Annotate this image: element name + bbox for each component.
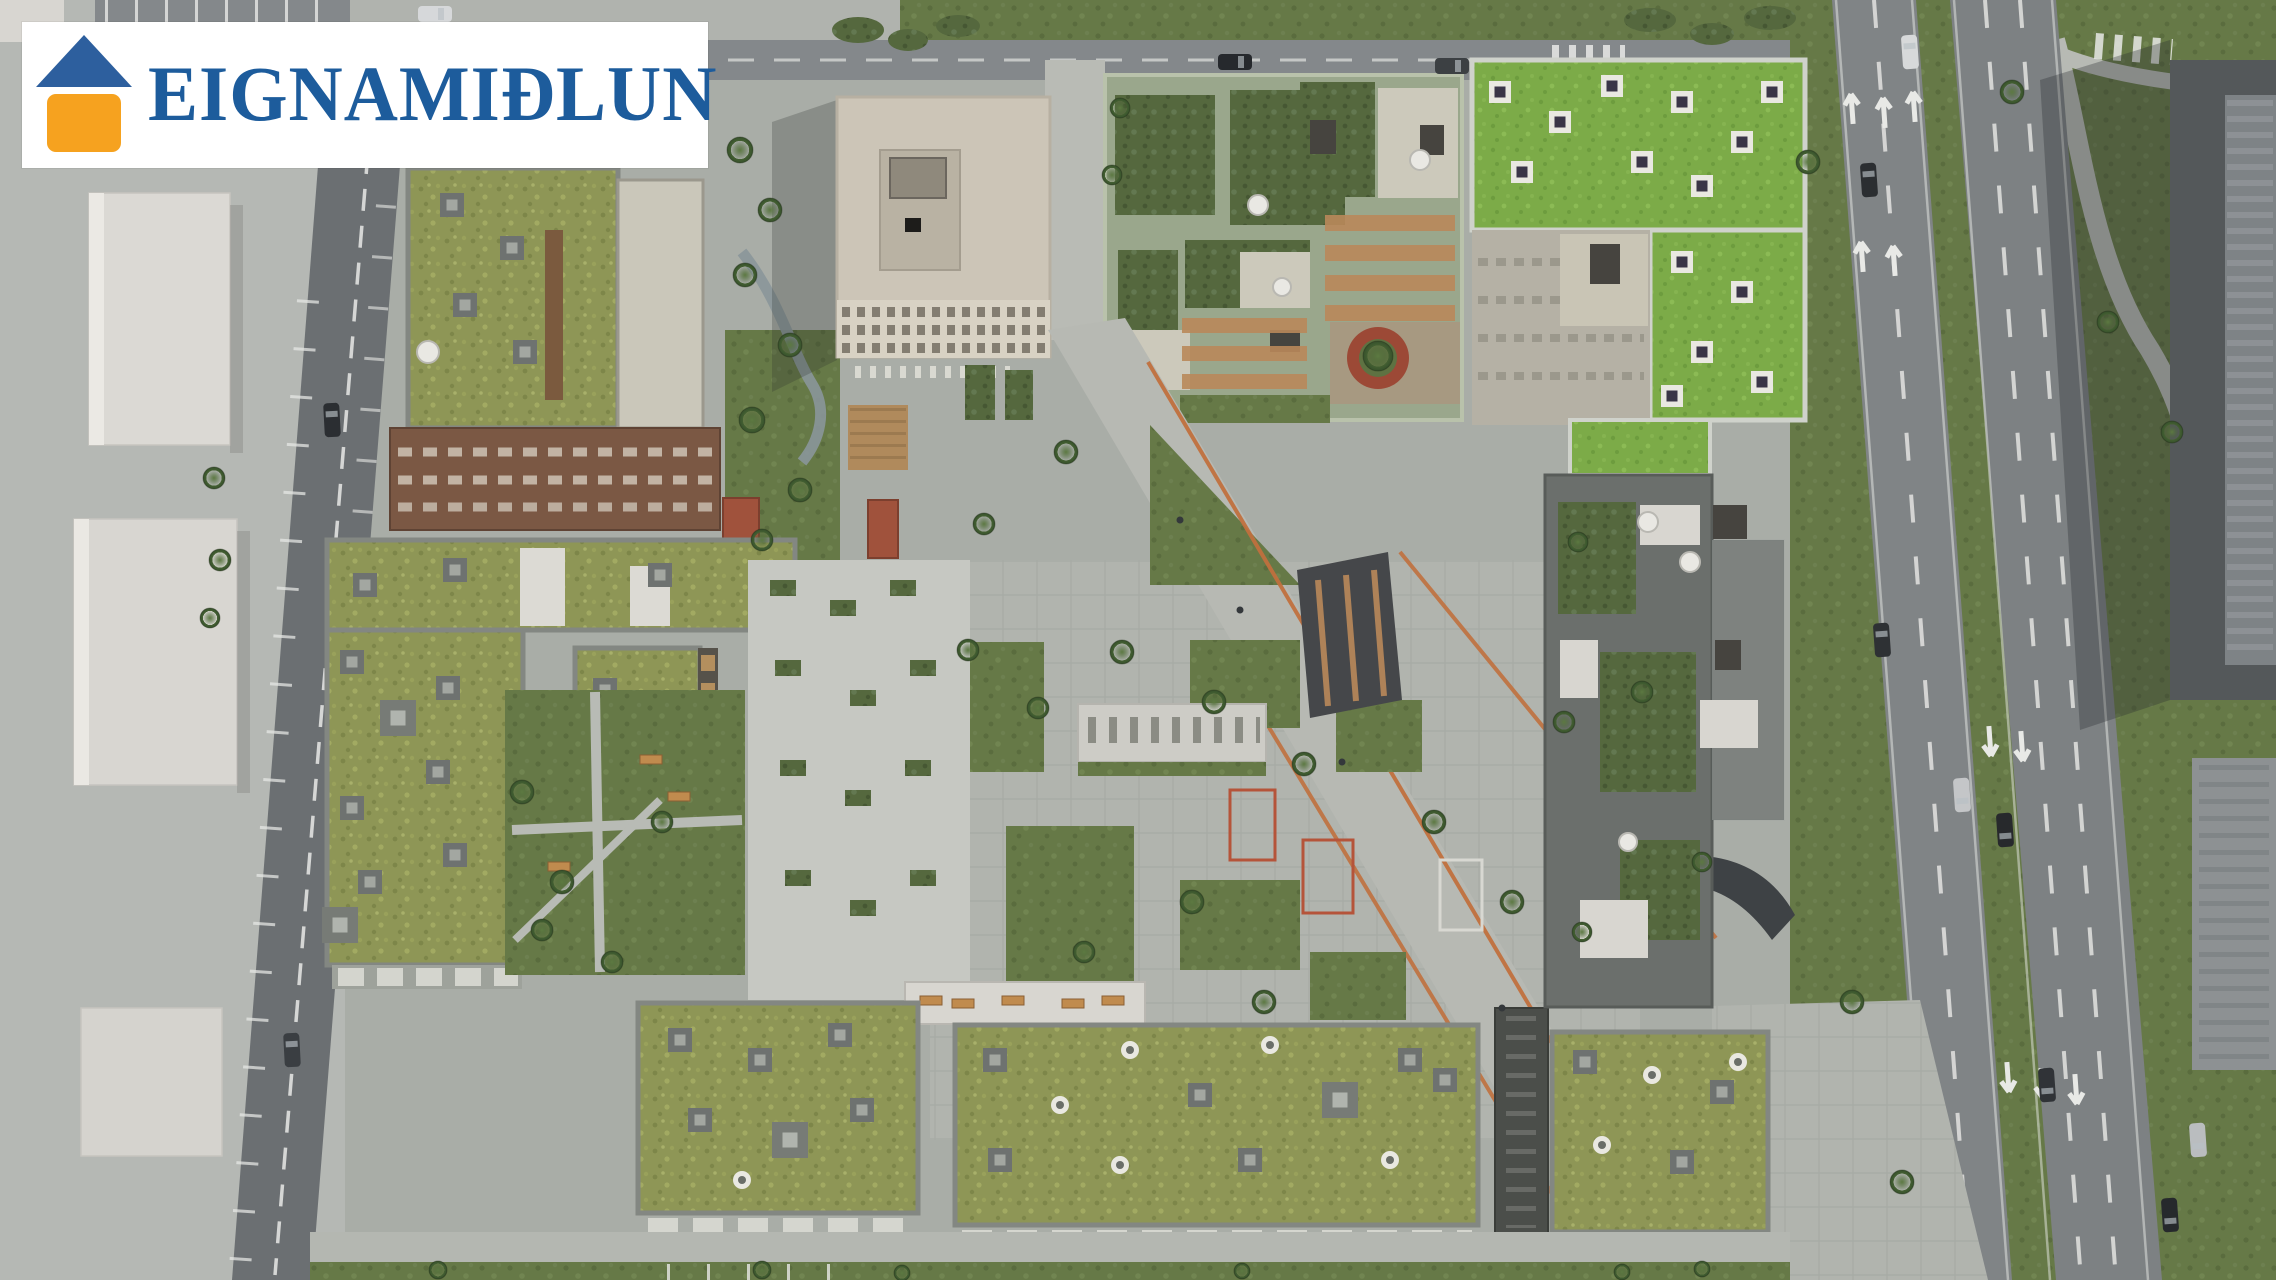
pedestrian <box>1177 517 1184 524</box>
car <box>2038 1067 2056 1102</box>
car <box>2189 1122 2207 1157</box>
tree <box>1890 1170 1914 1194</box>
tree <box>2161 421 2183 443</box>
car <box>1860 162 1878 197</box>
rooftop-hut <box>1713 505 1747 539</box>
car <box>1901 34 1919 69</box>
tree <box>1234 1263 1250 1279</box>
nw-block-sedum-roof <box>408 168 618 428</box>
skylight <box>1601 75 1623 97</box>
house-body-shape <box>47 94 121 152</box>
podium-planter <box>770 580 796 596</box>
skylight <box>733 1171 751 1189</box>
house-roof-shape <box>36 35 132 87</box>
tree <box>1692 852 1712 872</box>
tree <box>429 1261 447 1279</box>
pedestrian <box>1237 607 1244 614</box>
roof-dome <box>1638 512 1658 532</box>
skylight <box>358 870 382 894</box>
cluster-garden-cell <box>1558 502 1636 614</box>
tree <box>778 333 802 357</box>
sage-roof-garden <box>1115 95 1215 215</box>
tree <box>973 513 995 535</box>
tree <box>751 529 773 551</box>
lounger <box>1102 996 1124 1005</box>
skylight <box>1761 81 1783 103</box>
skylight <box>1593 1136 1611 1154</box>
skylight <box>748 1048 772 1072</box>
tree <box>203 467 225 489</box>
cluster-roof-terrace <box>1700 700 1758 748</box>
roof-dome <box>1619 833 1637 851</box>
skylight <box>828 1023 852 1047</box>
skylight <box>1511 161 1533 183</box>
tree <box>1840 990 1864 1014</box>
sage-front-lawn <box>1180 395 1330 423</box>
skylight <box>1121 1041 1139 1059</box>
rooftop-hut <box>1715 640 1741 670</box>
car <box>2161 1197 2179 1232</box>
eignamidlun-logo: EIGNAMIÐLUN <box>22 22 708 168</box>
car <box>418 6 452 22</box>
logo-wordmark: EIGNAMIÐLUN <box>148 50 717 139</box>
podium-planter <box>850 690 876 706</box>
office-planter <box>1005 370 1033 420</box>
skylight <box>1322 1082 1358 1118</box>
tree <box>1110 640 1134 664</box>
tree <box>1027 697 1049 719</box>
podium-planter <box>845 790 871 806</box>
car <box>1435 58 1469 74</box>
tree <box>1694 1261 1710 1277</box>
lounger <box>1002 996 1024 1005</box>
skylight <box>426 760 450 784</box>
bench <box>668 792 690 801</box>
roof-dome <box>1680 552 1700 572</box>
pedestrian <box>1499 1005 1506 1012</box>
podium-planter <box>850 900 876 916</box>
white-building-b-shadow <box>237 531 250 793</box>
skylight <box>436 676 460 700</box>
skylight <box>1691 341 1713 363</box>
podium-planter <box>910 660 936 676</box>
podium-planter <box>785 870 811 886</box>
skylight <box>688 1108 712 1132</box>
podium-terrace <box>748 560 970 1000</box>
tree <box>510 780 534 804</box>
skylight <box>1731 281 1753 303</box>
car <box>1953 777 1971 812</box>
tree <box>733 263 757 287</box>
cluster-garden-cell <box>1600 652 1696 792</box>
skylight <box>340 796 364 820</box>
skylight <box>1751 371 1773 393</box>
bench <box>640 755 662 764</box>
skylight <box>1489 81 1511 103</box>
tree <box>531 919 553 941</box>
white-building-a-face <box>89 193 104 445</box>
red-brick-sculpture <box>868 500 898 558</box>
skylight <box>1433 1068 1457 1092</box>
white-building-a <box>89 193 230 445</box>
tree <box>651 811 673 833</box>
skylight <box>1238 1148 1262 1172</box>
roof-dome <box>417 341 439 363</box>
sage-balcony-row <box>1182 346 1307 361</box>
nw-block-wood-deck <box>545 230 563 400</box>
hedge-bush <box>888 29 928 51</box>
cluster-east-extension <box>1712 540 1784 820</box>
lounger <box>952 999 974 1008</box>
tree <box>1422 810 1446 834</box>
tree <box>758 198 782 222</box>
tree <box>739 407 765 433</box>
office-planter <box>965 365 995 420</box>
tree <box>601 951 623 973</box>
skylight <box>1661 385 1683 407</box>
roof-dome <box>1273 278 1291 296</box>
tree <box>2000 80 2024 104</box>
tree <box>1553 711 1575 733</box>
skylight <box>380 700 416 736</box>
skylight <box>443 843 467 867</box>
office-south-facade <box>837 300 1050 358</box>
sage-balcony-row <box>1182 374 1307 389</box>
screenshot-root: EIGNAMIÐLUN <box>0 0 2276 1280</box>
skylight <box>988 1148 1012 1172</box>
tree <box>894 1265 910 1280</box>
skylight <box>1670 1150 1694 1174</box>
skylight <box>1731 131 1753 153</box>
skylight <box>1691 175 1713 197</box>
roof-dome <box>1410 150 1430 170</box>
lounger <box>1062 999 1084 1008</box>
tree <box>727 137 753 163</box>
white-building-b-face <box>74 519 89 785</box>
car <box>1996 812 2014 847</box>
tree <box>1292 752 1316 776</box>
tree <box>1363 341 1393 371</box>
roof-dome <box>1248 195 1268 215</box>
skylight <box>1051 1096 1069 1114</box>
skylight <box>850 1098 874 1122</box>
pedestrian <box>1339 759 1346 766</box>
podium-planter <box>775 660 801 676</box>
sage-balcony-row <box>1325 215 1455 231</box>
garden-terraced-steps <box>848 405 908 470</box>
l-complex-roof-north <box>1472 60 1805 230</box>
bench <box>548 862 570 871</box>
house-logo-icon <box>36 35 132 155</box>
tree <box>788 478 812 502</box>
tree <box>1054 440 1078 464</box>
tree <box>209 549 231 571</box>
skylight <box>440 193 464 217</box>
tree <box>957 639 979 661</box>
tree <box>1796 150 1820 174</box>
sage-roof-courtyard <box>1378 88 1458 198</box>
tree <box>1614 1264 1630 1280</box>
west-block-roof-terrace <box>520 548 565 626</box>
dark-tower <box>1495 1008 1548 1236</box>
podium-planter <box>890 580 916 596</box>
nw-block-terrace <box>618 180 703 428</box>
hedge-bush <box>832 17 884 43</box>
skylight <box>453 293 477 317</box>
tree <box>1500 890 1524 914</box>
skylight <box>772 1122 808 1158</box>
skylight <box>668 1028 692 1052</box>
skylight <box>1573 1050 1597 1074</box>
cluster-green-roof <box>1570 420 1710 475</box>
sage-roof-garden <box>1118 250 1178 330</box>
skylight <box>1710 1080 1734 1104</box>
tree <box>200 608 220 628</box>
plaza-lawn-patch <box>1310 952 1406 1020</box>
skylight <box>1631 151 1653 173</box>
rooftop-hut <box>1590 244 1620 284</box>
skylight <box>1549 111 1571 133</box>
sage-balcony-row <box>1325 275 1455 291</box>
skylight <box>1398 1048 1422 1072</box>
tree <box>1202 690 1226 714</box>
white-building-a-shadow <box>230 205 243 453</box>
car <box>283 1033 301 1068</box>
skylight <box>1643 1066 1661 1084</box>
skylight <box>1729 1053 1747 1071</box>
tree <box>550 870 574 894</box>
car <box>1218 54 1252 70</box>
aerial-render <box>0 0 2276 1280</box>
cluster-roof-terrace <box>1560 640 1598 698</box>
skylight <box>322 907 358 943</box>
walking-street <box>1045 60 1105 340</box>
plaza-lawn-patch <box>1336 700 1422 772</box>
tree <box>1572 922 1592 942</box>
lamella-front-lawn <box>1078 762 1266 776</box>
hedge-bush <box>1624 8 1676 32</box>
tree <box>1110 98 1130 118</box>
hedge-bush <box>1690 23 1734 45</box>
skylight <box>500 236 524 260</box>
car <box>323 403 341 438</box>
skylight <box>648 563 672 587</box>
tree <box>1102 165 1122 185</box>
bottom-sidewalk <box>310 1232 1790 1262</box>
tree <box>1631 681 1653 703</box>
hedge-bush <box>936 15 980 37</box>
skylight <box>513 340 537 364</box>
skylight <box>443 558 467 582</box>
bottom-grass-verge <box>310 1262 1790 1280</box>
tree <box>1073 941 1095 963</box>
skylight <box>1188 1083 1212 1107</box>
skylight <box>983 1048 1007 1072</box>
tree <box>2097 311 2119 333</box>
podium-planter <box>905 760 931 776</box>
office-rooftop-hatch <box>905 218 921 232</box>
sage-balcony-row <box>1182 318 1307 333</box>
tree <box>1568 532 1588 552</box>
tree <box>753 1261 771 1279</box>
hedge-bush <box>1744 6 1796 30</box>
tree <box>1180 890 1204 914</box>
courtyard-path <box>595 692 600 972</box>
office-penthouse-grid <box>890 158 946 198</box>
skylight <box>1671 251 1693 273</box>
rooftop-hut <box>1310 120 1336 154</box>
white-building-c <box>81 1008 222 1156</box>
skylight <box>1111 1156 1129 1174</box>
skylight <box>1261 1036 1279 1054</box>
skylight <box>1671 91 1693 113</box>
podium-planter <box>910 870 936 886</box>
skylight <box>340 650 364 674</box>
car <box>1873 622 1891 657</box>
skylight <box>353 573 377 597</box>
podium-planter <box>780 760 806 776</box>
tree <box>1252 990 1276 1014</box>
lounger <box>920 996 942 1005</box>
sage-balcony-row <box>1325 245 1455 261</box>
podium-planter <box>830 600 856 616</box>
sage-balcony-row <box>1325 305 1455 321</box>
plaza-lawn-patch <box>1006 826 1134 994</box>
skylight <box>1381 1151 1399 1169</box>
